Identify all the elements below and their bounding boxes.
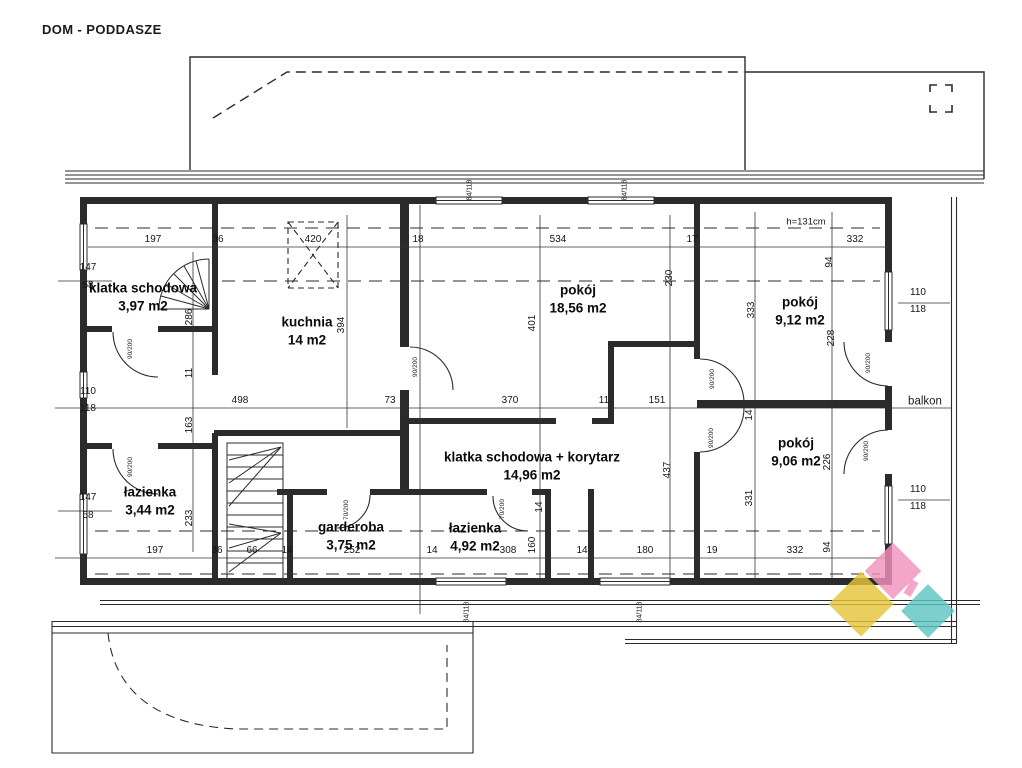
door-arc-lazienka344 — [113, 449, 158, 494]
walls-layer — [80, 197, 892, 585]
door-arc-pokoj906 — [700, 408, 744, 452]
door-arc-kuchnia — [410, 347, 453, 390]
door-arc-pokoj912 — [700, 359, 744, 403]
door-arc-balkon-2 — [844, 430, 888, 474]
skylight-symbol — [288, 222, 338, 288]
door-arc-lazienka492 — [493, 496, 528, 531]
door-arc-garderoba — [337, 495, 370, 528]
dashed-square-icon — [930, 85, 952, 112]
watermark-logo — [828, 543, 954, 638]
windows-layer — [80, 197, 892, 585]
eaves-band-top — [65, 171, 984, 183]
main-staircase — [227, 443, 283, 580]
spiral-staircase — [159, 259, 209, 309]
roof-outline — [190, 57, 984, 179]
terrace-outline — [52, 621, 473, 753]
terrace-dashed-edge — [108, 633, 447, 729]
door-arc-balkon-1 — [844, 342, 888, 386]
floorplan-svg — [0, 0, 1022, 768]
floorplan-page: DOM - PODDASZE — [0, 0, 1022, 768]
dimension-lines — [55, 205, 952, 614]
balcony-and-terrace — [52, 197, 980, 753]
door-arc-klatka — [113, 332, 158, 377]
